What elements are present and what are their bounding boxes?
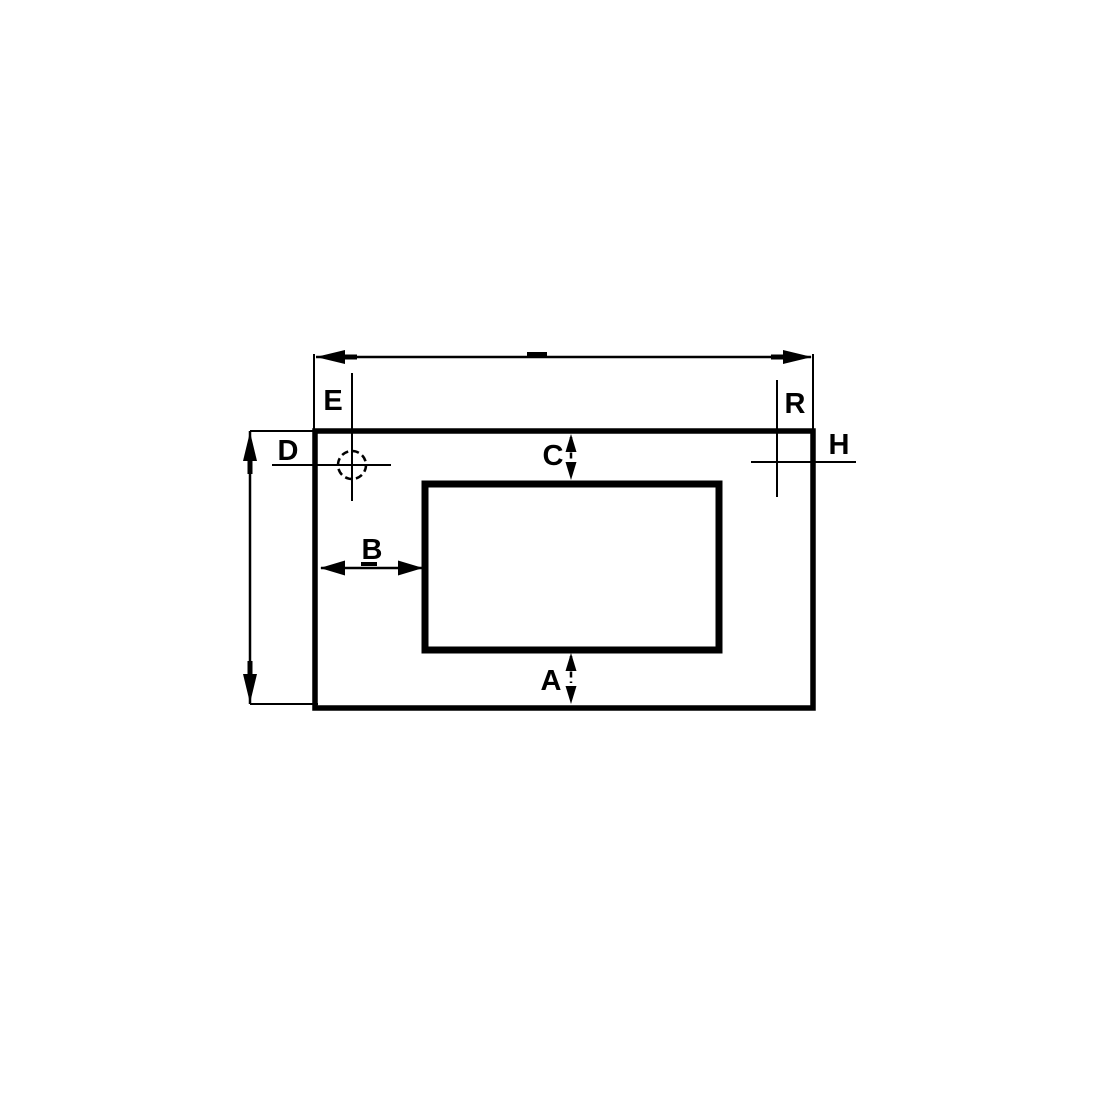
- a-dim-up-arrowhead-icon: [566, 653, 577, 671]
- dimension-c: C: [543, 434, 577, 480]
- dimension-a: A: [541, 653, 577, 704]
- corner-crosshair-marker: R H: [751, 380, 856, 497]
- dimension-b: B: [320, 534, 423, 576]
- top-width-dimension: [314, 350, 813, 429]
- outer-panel-rect: [315, 431, 813, 708]
- label-r: R: [785, 388, 806, 420]
- inner-cutout-rect: [425, 484, 719, 650]
- label-c: C: [543, 440, 564, 472]
- label-h: H: [829, 429, 850, 461]
- b-dim-left-arrowhead-icon: [320, 561, 345, 576]
- panel-outlines: [315, 431, 813, 708]
- label-b: B: [362, 534, 383, 566]
- drawing-canvas: D B C A E R H: [0, 0, 1100, 1100]
- b-dim-right-arrowhead-icon: [398, 561, 423, 576]
- dimension-diagram: D B C A E R H: [0, 0, 1100, 1100]
- left-height-dimension: D: [243, 431, 318, 704]
- label-e: E: [323, 385, 342, 417]
- label-d: D: [278, 435, 299, 467]
- c-dim-down-arrowhead-icon: [566, 462, 577, 480]
- c-dim-up-arrowhead-icon: [566, 434, 577, 452]
- top-dim-left-arrowhead-icon: [316, 350, 345, 364]
- top-dim-right-arrowhead-icon: [783, 350, 812, 364]
- label-a: A: [541, 665, 562, 697]
- a-dim-down-arrowhead-icon: [566, 686, 577, 704]
